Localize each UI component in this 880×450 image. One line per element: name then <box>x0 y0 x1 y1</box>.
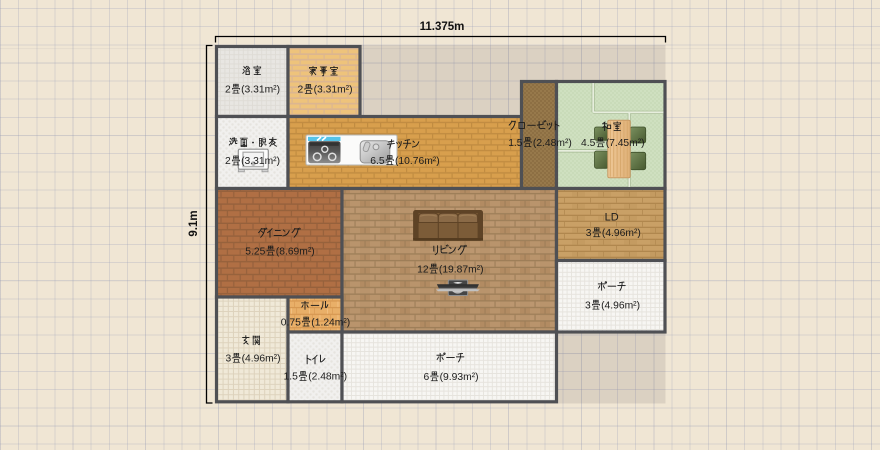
svg-text:(10.76m²): (10.76m²) <box>395 156 440 167</box>
svg-text:(7.45m²): (7.45m²) <box>606 138 645 149</box>
svg-text:2: 2 <box>225 84 231 95</box>
svg-text:12: 12 <box>417 264 429 275</box>
svg-text:(3.31m²): (3.31m²) <box>241 84 280 95</box>
svg-text:(4.96m²): (4.96m²) <box>601 300 640 311</box>
svg-text:(2.48m²): (2.48m²) <box>308 372 347 383</box>
svg-text:4.5: 4.5 <box>581 138 596 149</box>
svg-text:2: 2 <box>298 85 304 96</box>
svg-text:1.5: 1.5 <box>284 372 299 383</box>
svg-text:11.375m: 11.375m <box>420 21 465 33</box>
svg-text:2: 2 <box>225 156 231 167</box>
svg-text:(9.93m²): (9.93m²) <box>440 372 479 383</box>
svg-text:0.75: 0.75 <box>281 317 301 328</box>
svg-text:(4.96m²): (4.96m²) <box>242 354 281 365</box>
svg-text:(2.48m²): (2.48m²) <box>533 138 572 149</box>
svg-text:3: 3 <box>585 300 591 311</box>
svg-text:(3.31m²): (3.31m²) <box>314 85 353 96</box>
svg-text:(8.69m²): (8.69m²) <box>276 246 315 257</box>
svg-text:1.5: 1.5 <box>508 138 523 149</box>
svg-text:3: 3 <box>586 228 592 239</box>
svg-text:6.5: 6.5 <box>370 156 385 167</box>
svg-text:9.1m: 9.1m <box>188 210 200 236</box>
svg-text:6: 6 <box>424 372 430 383</box>
svg-text:LD: LD <box>605 211 619 223</box>
svg-text:(19.87m²): (19.87m²) <box>439 264 484 275</box>
svg-text:5.25: 5.25 <box>245 246 265 257</box>
svg-text:(1.24m²): (1.24m²) <box>311 317 350 328</box>
svg-text:3: 3 <box>226 354 232 365</box>
svg-text:(3.31m²): (3.31m²) <box>241 156 280 167</box>
svg-text:(4.96m²): (4.96m²) <box>602 228 641 239</box>
